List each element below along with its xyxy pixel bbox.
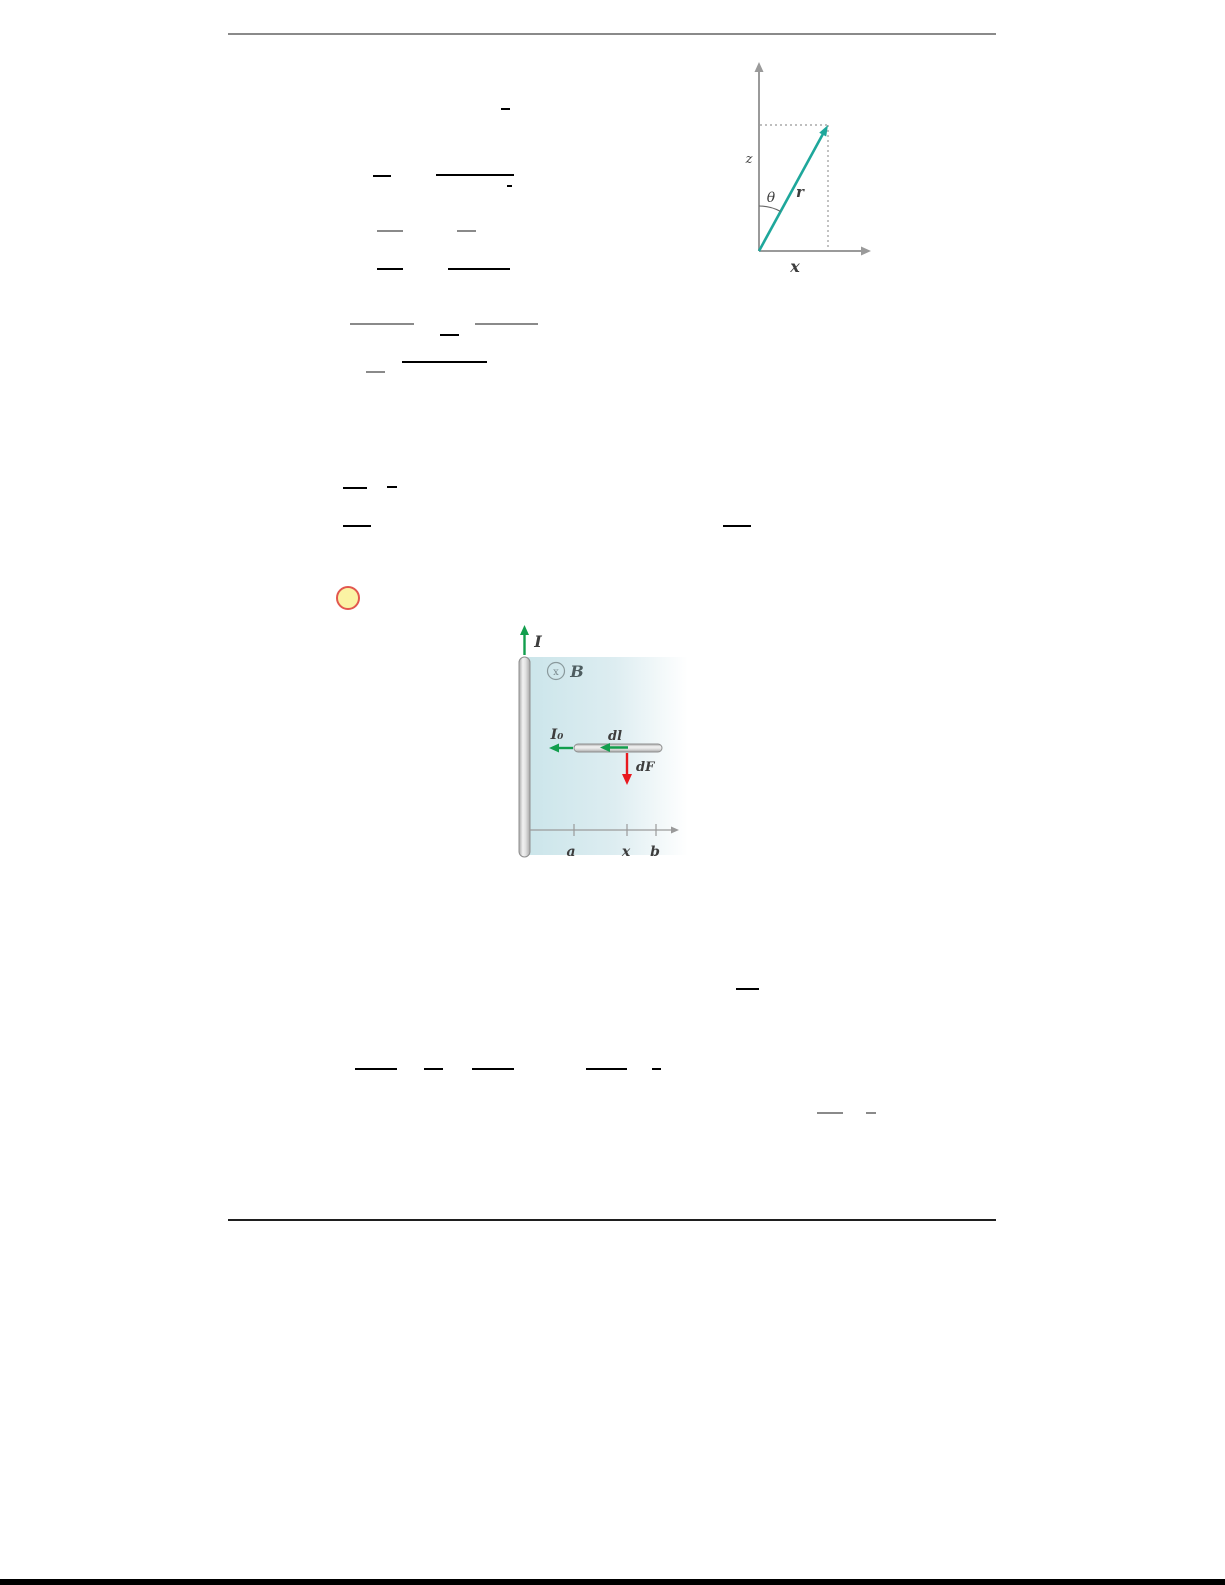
equation-fraction-bar bbox=[440, 334, 459, 336]
equation-fraction-bar bbox=[448, 268, 510, 270]
top-horizontal-rule bbox=[228, 33, 996, 35]
current-i-label: I bbox=[533, 632, 542, 651]
theta-angle-arc bbox=[759, 206, 781, 212]
bottom-horizontal-rule bbox=[228, 1219, 996, 1221]
equation-fraction-bar bbox=[402, 361, 487, 363]
equation-fraction-bar bbox=[817, 1112, 843, 1114]
vector-angle-diagram: z θ r x bbox=[700, 55, 885, 290]
equation-fraction-bar bbox=[652, 1068, 661, 1070]
x-axis-label: x bbox=[789, 257, 800, 276]
equation-fraction-bar bbox=[457, 230, 476, 232]
vector-r-arrowhead bbox=[819, 125, 828, 137]
equation-fraction-bar bbox=[736, 988, 759, 990]
equation-fraction-bar bbox=[373, 175, 391, 177]
equation-fraction-bar bbox=[501, 108, 510, 110]
equation-fraction-bar bbox=[377, 268, 403, 270]
dl-label: dl bbox=[608, 729, 622, 744]
equation-fraction-bar bbox=[377, 230, 403, 232]
equation-fraction-bar bbox=[387, 486, 397, 488]
equation-fraction-bar bbox=[436, 174, 514, 176]
tick-b-label: b bbox=[650, 844, 660, 860]
current-i-arrowhead bbox=[520, 625, 529, 635]
wire-field-force-diagram: I x B I₀ dl dF a x b bbox=[505, 615, 705, 867]
equation-fraction-bar bbox=[343, 525, 371, 527]
field-into-page-x: x bbox=[553, 667, 559, 678]
equation-fraction-bar bbox=[355, 1068, 397, 1070]
z-axis-arrowhead bbox=[755, 62, 764, 72]
r-label: r bbox=[796, 183, 805, 201]
vertical-wire bbox=[519, 657, 530, 857]
df-label: dF bbox=[636, 760, 655, 775]
z-axis-label: z bbox=[745, 152, 753, 167]
field-region-shading bbox=[525, 657, 688, 855]
tick-a-label: a bbox=[566, 844, 575, 860]
equation-fraction-bar bbox=[424, 1068, 443, 1070]
theta-label: θ bbox=[767, 190, 776, 206]
tick-x-label: x bbox=[621, 844, 631, 860]
equation-fraction-bar bbox=[586, 1068, 627, 1070]
equation-fraction-bar bbox=[507, 185, 512, 187]
equation-fraction-bar bbox=[866, 1112, 876, 1114]
bullet-marker bbox=[336, 586, 360, 610]
x-axis-arrowhead bbox=[861, 247, 871, 256]
equation-fraction-bar bbox=[343, 487, 367, 489]
rod-current-label: I₀ bbox=[550, 727, 564, 743]
page-bottom-strip bbox=[0, 1579, 1225, 1585]
equation-fraction-bar bbox=[366, 371, 385, 373]
equation-fraction-bar bbox=[723, 525, 751, 527]
equation-fraction-bar bbox=[472, 1068, 514, 1070]
equation-fraction-bar bbox=[350, 323, 414, 325]
equation-fraction-bar bbox=[475, 323, 538, 325]
field-b-label: B bbox=[569, 662, 584, 681]
document-page: z θ r x bbox=[0, 0, 1225, 1585]
